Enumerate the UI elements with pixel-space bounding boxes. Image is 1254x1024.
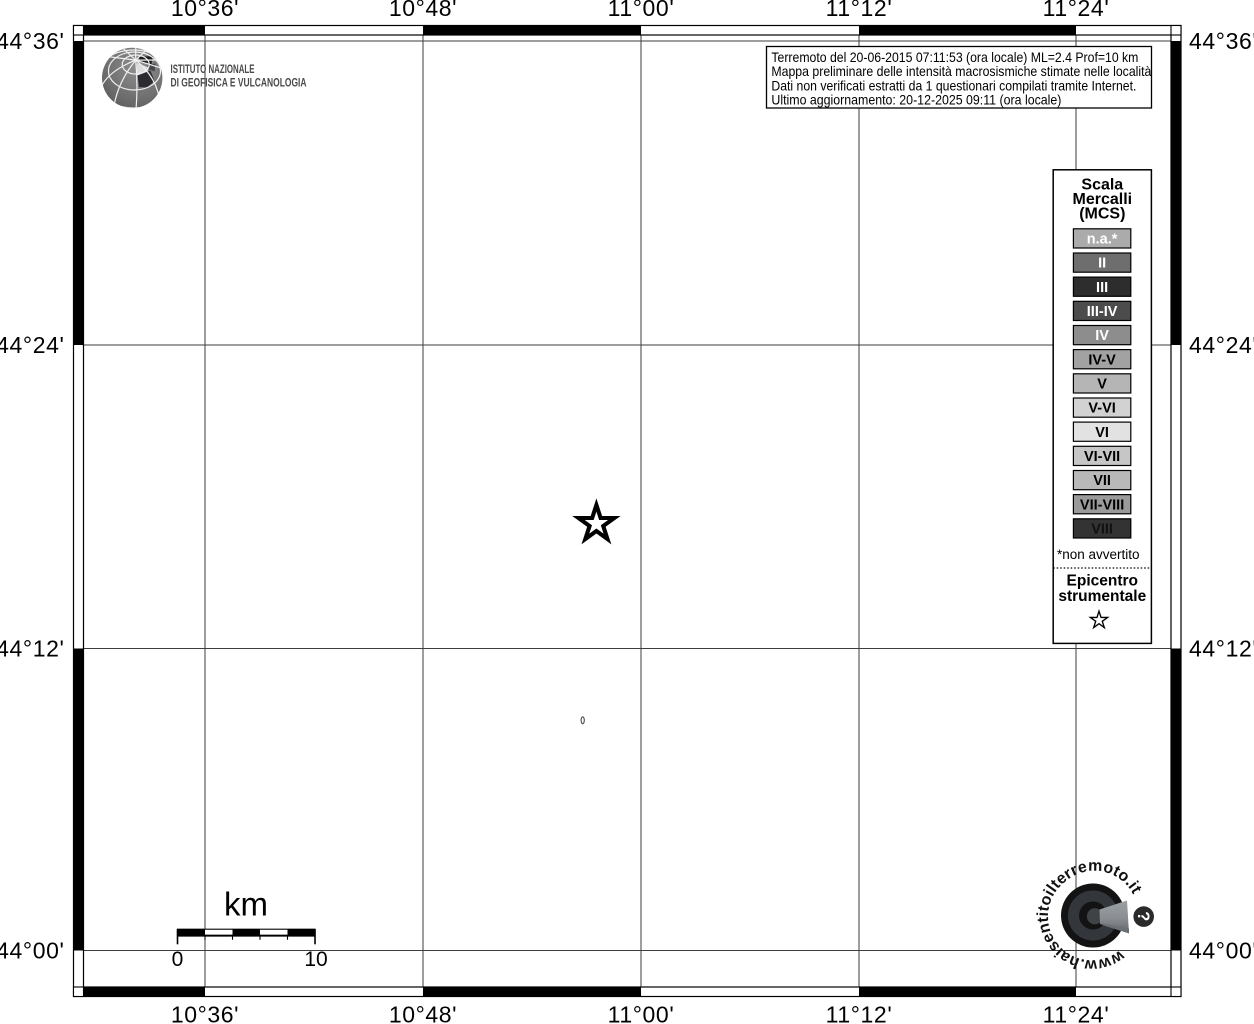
svg-text:III: III <box>1096 280 1108 296</box>
svg-text:44°12': 44°12' <box>0 636 65 662</box>
svg-text:11°24': 11°24' <box>1043 1002 1110 1024</box>
svg-text:44°24': 44°24' <box>1189 332 1254 358</box>
svg-text:km: km <box>224 886 268 923</box>
svg-text:Dati non verificati estratti d: Dati non verificati estratti da 1 questi… <box>771 78 1136 93</box>
svg-text:0: 0 <box>172 948 184 971</box>
svg-text:VIII: VIII <box>1091 522 1113 538</box>
svg-text:VII: VII <box>1093 473 1111 489</box>
svg-text:10: 10 <box>304 948 327 971</box>
svg-text:n.a.*: n.a.* <box>1087 232 1118 248</box>
svg-text:Ultimo aggiornamento: 20-12-20: Ultimo aggiornamento: 20-12-2025 09:11 (… <box>771 93 1061 108</box>
svg-text:10°48': 10°48' <box>389 0 457 21</box>
svg-text:IV-V: IV-V <box>1088 352 1116 368</box>
svg-text:10°36': 10°36' <box>171 0 239 21</box>
svg-text:III-IV: III-IV <box>1087 304 1118 320</box>
svg-text:Mappa preliminare delle intens: Mappa preliminare delle intensità macros… <box>771 64 1151 79</box>
svg-text:11°12': 11°12' <box>826 0 893 21</box>
svg-text:11°00': 11°00' <box>608 0 675 21</box>
svg-text:44°00': 44°00' <box>0 938 65 964</box>
svg-text:(MCS): (MCS) <box>1079 206 1125 223</box>
svg-text:VII-VIII: VII-VIII <box>1080 497 1124 513</box>
svg-text:VI: VI <box>1095 425 1109 441</box>
svg-text:V: V <box>1097 377 1107 393</box>
svg-text:11°24': 11°24' <box>1043 0 1110 21</box>
svg-text:DI GEOFISICA E VULCANOLOGIA: DI GEOFISICA E VULCANOLOGIA <box>171 76 307 90</box>
svg-text:V-VI: V-VI <box>1088 401 1115 417</box>
svg-text:44°00': 44°00' <box>1189 938 1254 964</box>
svg-text:II: II <box>1098 256 1106 272</box>
svg-text:10°36': 10°36' <box>171 1002 239 1024</box>
svg-text:11°00': 11°00' <box>608 1002 675 1024</box>
svg-text:IV: IV <box>1095 328 1109 344</box>
svg-text:44°36': 44°36' <box>1189 28 1254 54</box>
svg-text:strumentale: strumentale <box>1058 588 1146 605</box>
svg-text:ISTITUTO NAZIONALE: ISTITUTO NAZIONALE <box>171 62 255 76</box>
svg-text:Terremoto del 20-06-2015 07:11: Terremoto del 20-06-2015 07:11:53 (ora l… <box>771 50 1138 65</box>
svg-text:Epicentro: Epicentro <box>1067 573 1138 590</box>
svg-text:VI-VII: VI-VII <box>1084 449 1120 465</box>
svg-text:44°24': 44°24' <box>0 332 65 358</box>
svg-text:44°12': 44°12' <box>1189 636 1254 662</box>
svg-text:11°12': 11°12' <box>826 1002 893 1024</box>
svg-text:*non avvertito: *non avvertito <box>1057 547 1140 562</box>
svg-text:10°48': 10°48' <box>389 1002 457 1024</box>
svg-text:?: ? <box>1134 911 1152 922</box>
svg-text:44°36': 44°36' <box>0 28 65 54</box>
